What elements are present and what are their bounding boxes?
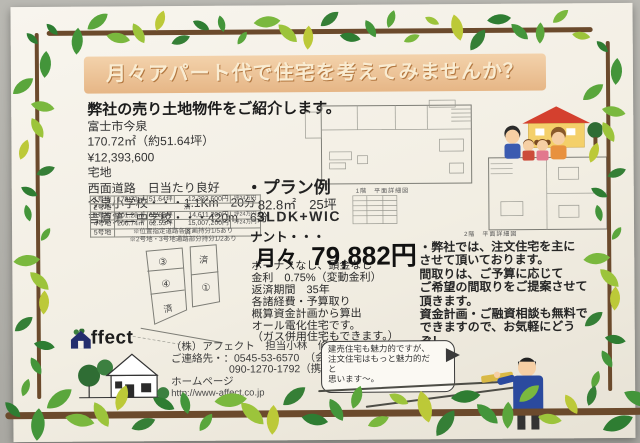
leaf-icon — [64, 28, 91, 55]
leaf-icon — [14, 139, 34, 159]
property-line: 宅地 — [88, 165, 269, 182]
leaf-icon — [193, 17, 209, 33]
leaf-icon — [28, 358, 45, 375]
leaf-icon — [602, 100, 626, 124]
leaf-icon — [468, 29, 489, 50]
leaf-icon — [47, 386, 72, 411]
property-line: 富士市今泉 — [87, 118, 268, 135]
leaf-icon — [511, 24, 528, 41]
leaf-icon — [302, 407, 328, 433]
leaf-icon — [32, 290, 56, 314]
lots-table-notes: ※位置指定道路各区画持分1/5あり ※2号地・3号地通路部分持分1/2あり — [98, 227, 268, 244]
flyer-paper: 月々アパート代で住宅を考えてみませんか？ 弊社の売り土地物件をご紹介します。 富… — [10, 3, 635, 442]
plan-layout: 3LDK+WIC — [257, 208, 341, 225]
leaf-icon — [20, 205, 37, 222]
leaf-icon — [597, 41, 608, 52]
leaf-icon — [325, 399, 347, 421]
leaf-icon — [553, 9, 568, 24]
flyer-photo: 月々アパート代で住宅を考えてみませんか？ 弊社の売り土地物件をご紹介します。 富… — [0, 0, 640, 443]
leaf-icon — [603, 409, 633, 439]
leaf-icon — [236, 32, 249, 45]
leaf-icon — [17, 379, 34, 396]
leaf-icon — [37, 161, 55, 179]
leaf-icon — [529, 23, 550, 44]
property-line: ¥12,393,600 — [87, 149, 268, 166]
leaf-icon — [13, 247, 40, 274]
property-line: 170.72㎡（約51.64坪） — [87, 134, 268, 151]
leaf-icon — [21, 184, 37, 200]
leaf-icon — [107, 26, 131, 50]
leaf-icon — [213, 15, 230, 32]
leaf-icon — [451, 381, 481, 411]
leaf-icon — [587, 371, 604, 388]
leaf-icon — [32, 51, 59, 78]
leaf-icon — [382, 10, 399, 27]
leaf-icon — [15, 315, 33, 333]
leaf-icon — [254, 9, 281, 36]
leaf-icon — [572, 26, 590, 44]
floorplan-1f-label: 1階 平面詳細図 — [356, 185, 409, 194]
leaf-icon — [605, 329, 626, 350]
leaf-icon — [339, 26, 360, 47]
leaf-icon — [47, 24, 58, 35]
leaf-icon — [22, 408, 54, 440]
leaf-icon — [171, 31, 189, 49]
leaf-icon — [31, 95, 55, 119]
leaf-icon — [28, 118, 48, 138]
payment-conditions: ボーナスなし、頭金なし 金利 0.75%（変動金利） 返済期間 35年 各諸経費… — [251, 260, 399, 344]
leaf-icon — [34, 335, 55, 356]
leaf-icon — [362, 21, 379, 38]
leaf-icon — [26, 33, 37, 44]
svg-text:①: ① — [201, 283, 210, 294]
leaf-icon — [624, 385, 640, 413]
leaf-icon — [444, 14, 470, 40]
pitch-text: ・弊社では、注文住宅を主に させて頂いております。 間取りは、ご予算に応じて ご… — [419, 240, 598, 348]
leaf-icon — [88, 11, 108, 31]
svg-text:③: ③ — [158, 257, 167, 268]
leaf-icon — [603, 286, 627, 310]
leaf-icon — [241, 403, 264, 426]
company-logo: ffect — [71, 328, 134, 348]
logo-house-a-icon — [71, 329, 91, 349]
leaf-icon — [150, 11, 170, 31]
leaf-icon — [5, 402, 20, 417]
floorplan-2f-label: 2階 平面詳細図 — [464, 229, 517, 238]
lot-map: ③ ④ 済 済 ① — [130, 244, 223, 347]
plan-schedule — [352, 194, 398, 224]
surveyor-illustration — [481, 345, 587, 436]
leaf-icon — [66, 406, 95, 435]
leaf-icon — [39, 228, 52, 241]
leaf-icon — [129, 24, 149, 44]
leaf-icon — [601, 269, 619, 287]
leaf-icon — [320, 10, 338, 28]
leaf-icon — [131, 412, 155, 436]
svg-text:済: 済 — [199, 254, 208, 265]
leaf-icon — [603, 58, 630, 85]
leaf-border-left — [11, 33, 66, 399]
title-banner: 月々アパート代で住宅を考えてみませんか？ — [84, 53, 546, 93]
svg-text:済: 済 — [162, 302, 173, 315]
leaf-icon — [425, 14, 439, 28]
leaf-icon — [610, 227, 623, 240]
leaf-icon — [487, 7, 511, 31]
leaf-icon — [389, 390, 408, 409]
leaf-icon — [89, 402, 114, 427]
leaf-border-top — [47, 6, 593, 56]
leaf-icon — [279, 24, 297, 42]
logo-house-illustration — [75, 347, 171, 404]
leaf-icon — [297, 25, 321, 49]
floorplan-2f — [485, 153, 612, 236]
leaf-icon — [13, 75, 33, 95]
leaf-icon — [368, 411, 389, 432]
leaf-icon — [598, 351, 615, 368]
leaf-icon — [197, 414, 214, 431]
leaf-icon — [433, 410, 459, 436]
leaf-icon — [404, 30, 420, 46]
svg-text:④: ④ — [161, 279, 170, 290]
logo-text: ffect — [91, 327, 134, 348]
leaf-icon — [258, 405, 288, 435]
leaf-icon — [583, 81, 603, 101]
family-illustration — [494, 103, 602, 164]
leaf-icon — [30, 272, 48, 290]
bubble-tail — [447, 350, 463, 360]
